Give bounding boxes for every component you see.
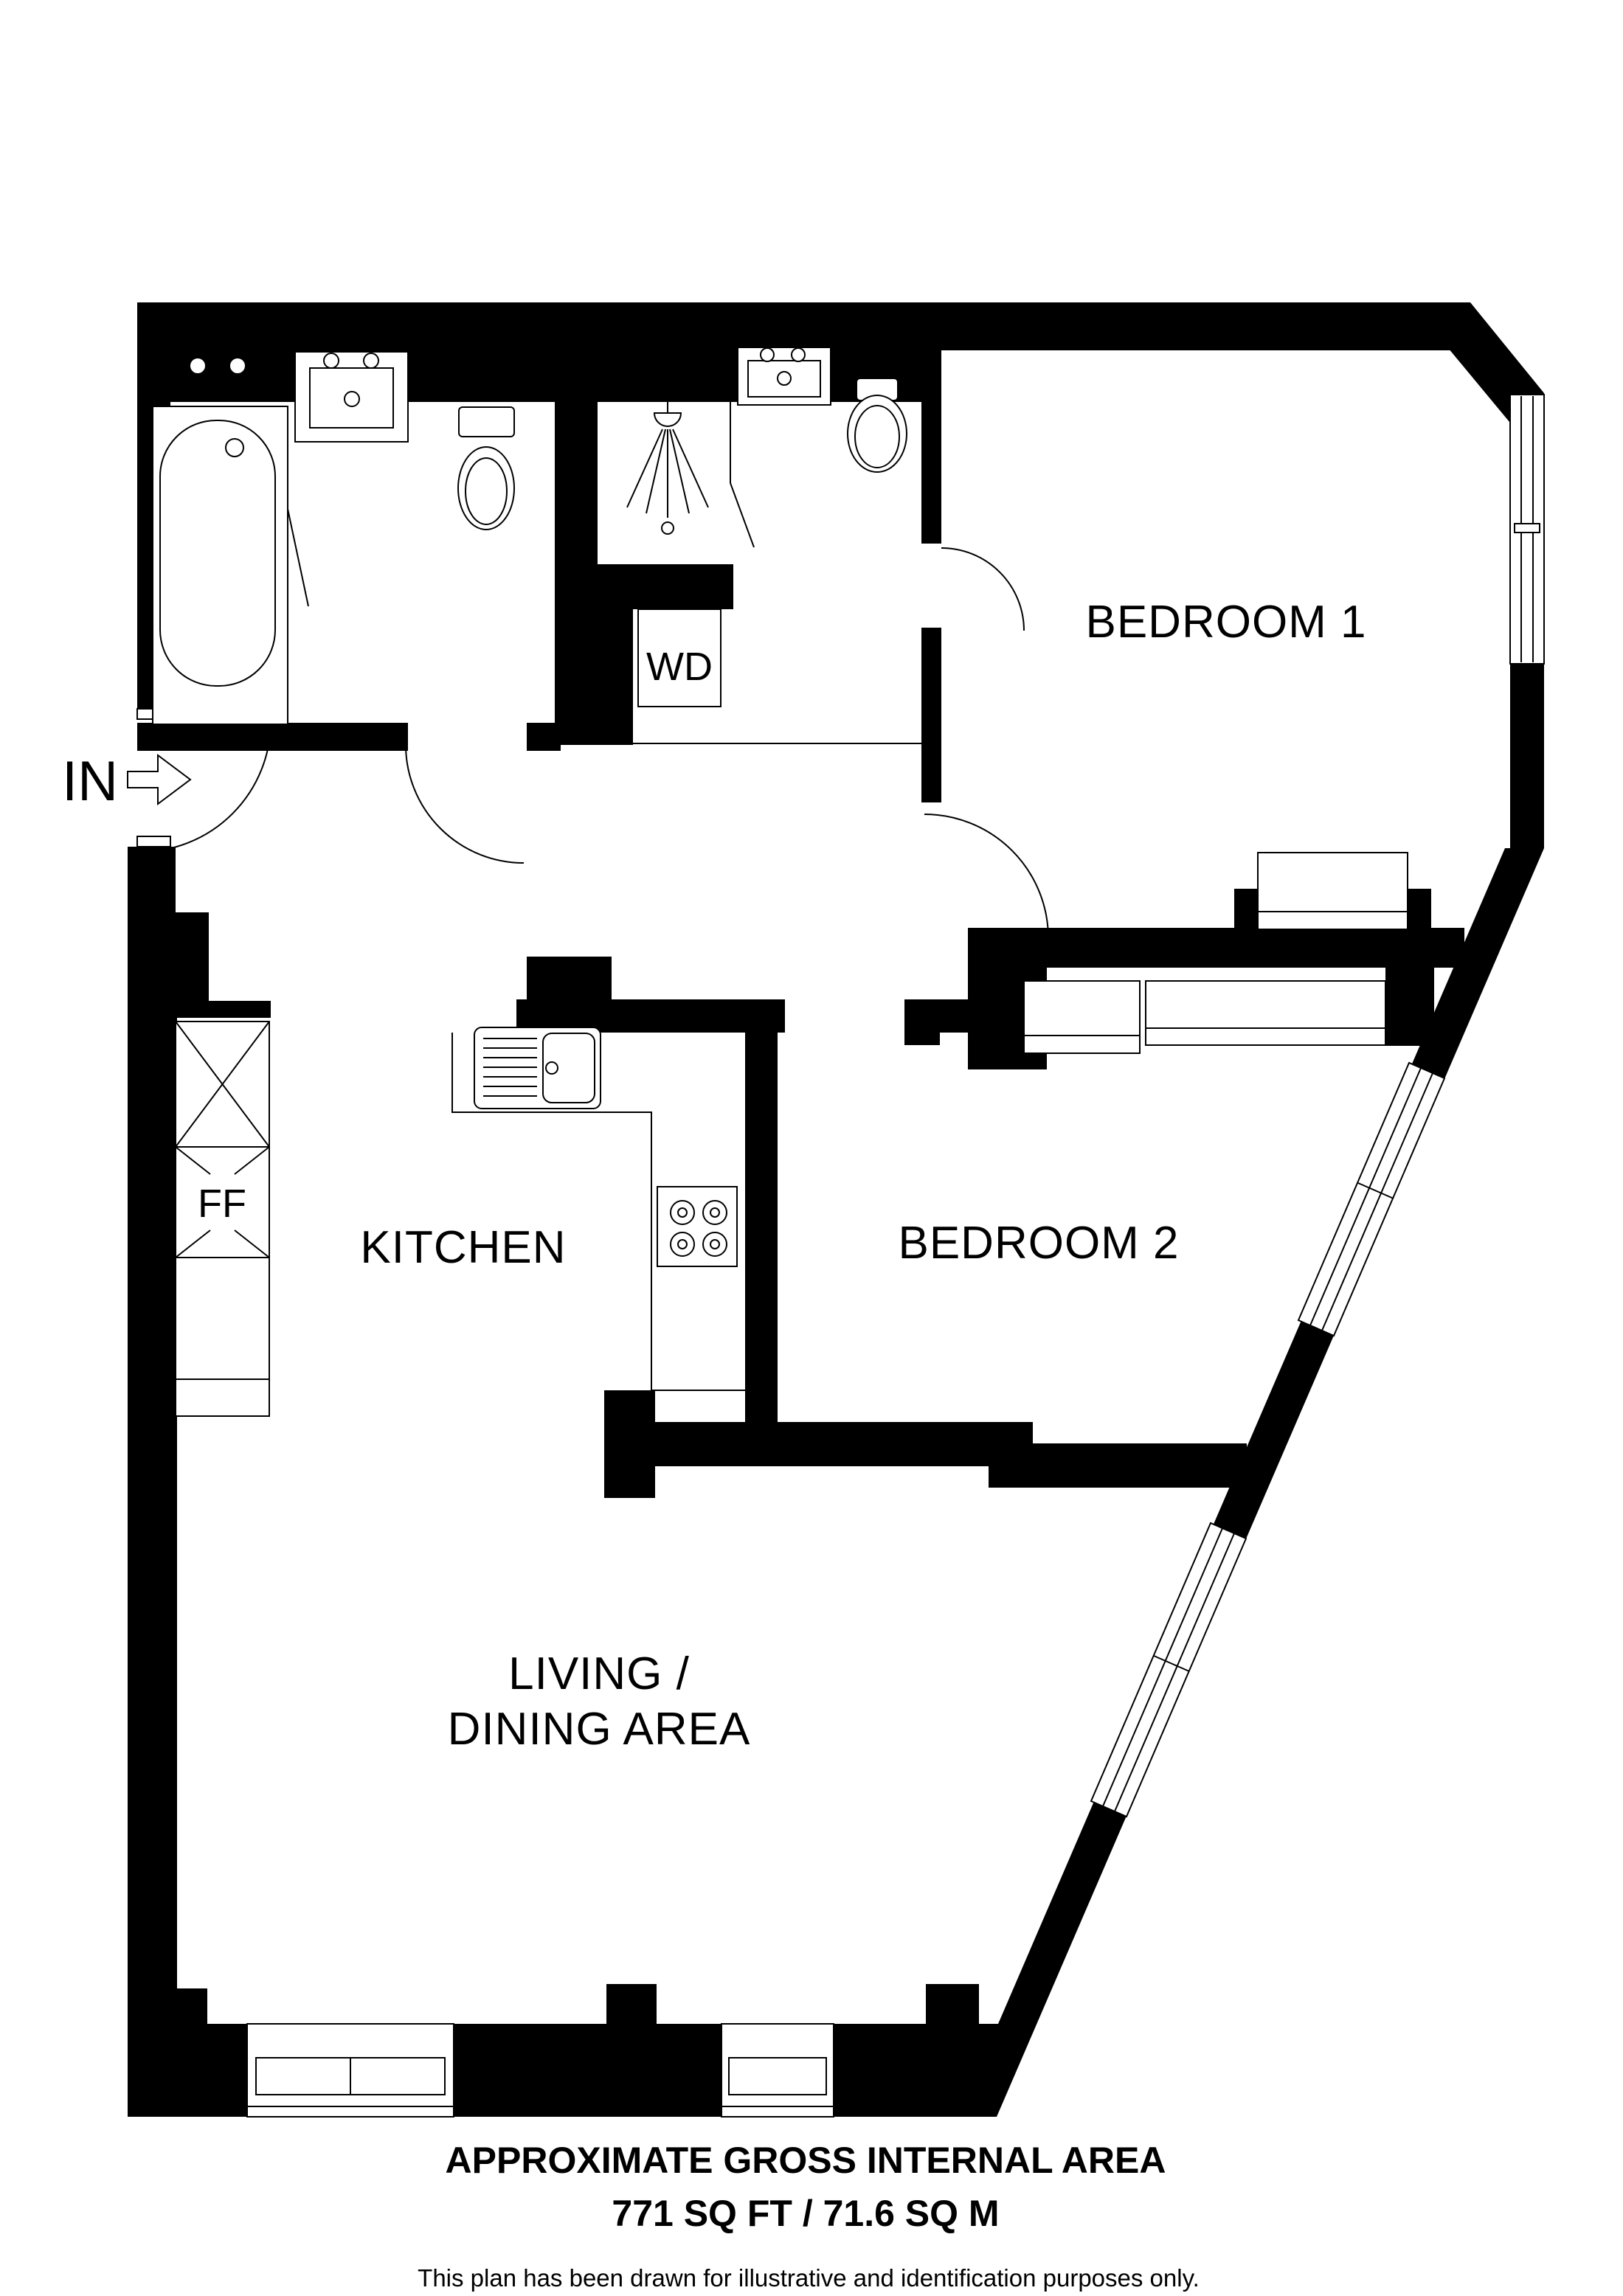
toilet-icon [458, 407, 514, 530]
bathroom1-door-arc [406, 745, 524, 863]
wall-top-bedroom1 [941, 302, 1470, 350]
kitchen-sink-icon [474, 1027, 601, 1109]
washer-dryer-unit: WD [638, 609, 721, 707]
wall-step-bottom-right [926, 1984, 979, 2024]
sink-icon [295, 352, 408, 442]
bedroom2-door-arc [924, 814, 1048, 938]
entrance-marker: IN [62, 750, 190, 813]
fridge-freezer-label: FF [198, 1182, 246, 1226]
wall-left-lower [128, 1018, 177, 2117]
walls [128, 302, 1544, 2117]
bedroom2-wardrobe-left-icon [1024, 981, 1140, 1053]
area-value: 771 SQ FT / 71.6 SQ M [612, 2193, 999, 2234]
wall-pillar-bottom [606, 1984, 657, 2024]
bedroom1-wardrobe-icon [1258, 853, 1408, 929]
bathtub-icon [153, 358, 288, 724]
wall-closet-diagonal-chunk [1385, 966, 1434, 1046]
bedroom1-door-arc [941, 548, 1024, 631]
window-bedroom1-right [1510, 395, 1544, 664]
tall-unit-icon [176, 1022, 269, 1147]
kitchen-fixtures: FF [176, 1022, 745, 1416]
hob-icon [657, 1187, 737, 1266]
entry-door-jamb-bottom [137, 836, 170, 847]
sink-icon [738, 347, 831, 405]
wall-left-entry [128, 847, 176, 1018]
wall-hall-mid [921, 628, 941, 802]
bathroom1-fixtures [153, 352, 514, 724]
wall-kitchen-living [655, 1422, 1033, 1466]
wall-closet-stub-right [1408, 889, 1431, 929]
entrance-arrow-icon [128, 755, 190, 804]
disclaimer: This plan has been drawn for illustrativ… [418, 2264, 1200, 2292]
wall-stub-hall [207, 1001, 271, 1018]
bedroom2-wardrobe-right-icon [1146, 981, 1385, 1045]
fridge-freezer-unit: FF [176, 1147, 269, 1258]
wall-kitchen-pillar [527, 957, 612, 999]
bedroom2-label: BEDROOM 2 [898, 1218, 1179, 1269]
wall-shower-bottom [598, 564, 733, 609]
window-living-bottom-right [721, 2024, 834, 2117]
wall-bathroom1-bottom [137, 723, 408, 751]
living-label-line2: DINING AREA [448, 1704, 751, 1755]
wall-closet-stub-left [1234, 889, 1258, 929]
wall-pillar-kitchen-living [604, 1390, 655, 1498]
wall-bedroom2-living [989, 1443, 1247, 1488]
wall-left-jog [176, 912, 209, 1018]
window-bedroom2-diagonal [1298, 1063, 1444, 1336]
wall-pillar-door2 [904, 999, 940, 1045]
wall-kitchen-bedroom2 [745, 999, 778, 1423]
base-unit-end-icon [176, 1379, 269, 1416]
window-living-bottom-left [247, 2024, 454, 2117]
toilet-icon [848, 378, 907, 472]
washer-dryer-label: WD [646, 645, 713, 689]
window-living-diagonal [1091, 1523, 1246, 1817]
entrance-label: IN [62, 750, 118, 813]
shower-icon [627, 402, 708, 534]
bedroom1-label: BEDROOM 1 [1085, 597, 1366, 648]
wall-alcove-left [555, 590, 633, 745]
floorplan-canvas: WD [0, 0, 1623, 2296]
kitchen-label: KITCHEN [360, 1222, 566, 1273]
base-unit-icon [176, 1258, 269, 1379]
area-title: APPROXIMATE GROSS INTERNAL AREA [446, 2140, 1166, 2181]
wall-step-bottom-left [177, 1988, 207, 2024]
bath-screen [288, 509, 308, 606]
shower-screen [730, 402, 754, 547]
living-label-line1: LIVING / [508, 1648, 690, 1699]
wall-bathroom-divider [555, 350, 598, 590]
wall-hall-upper [921, 350, 941, 544]
